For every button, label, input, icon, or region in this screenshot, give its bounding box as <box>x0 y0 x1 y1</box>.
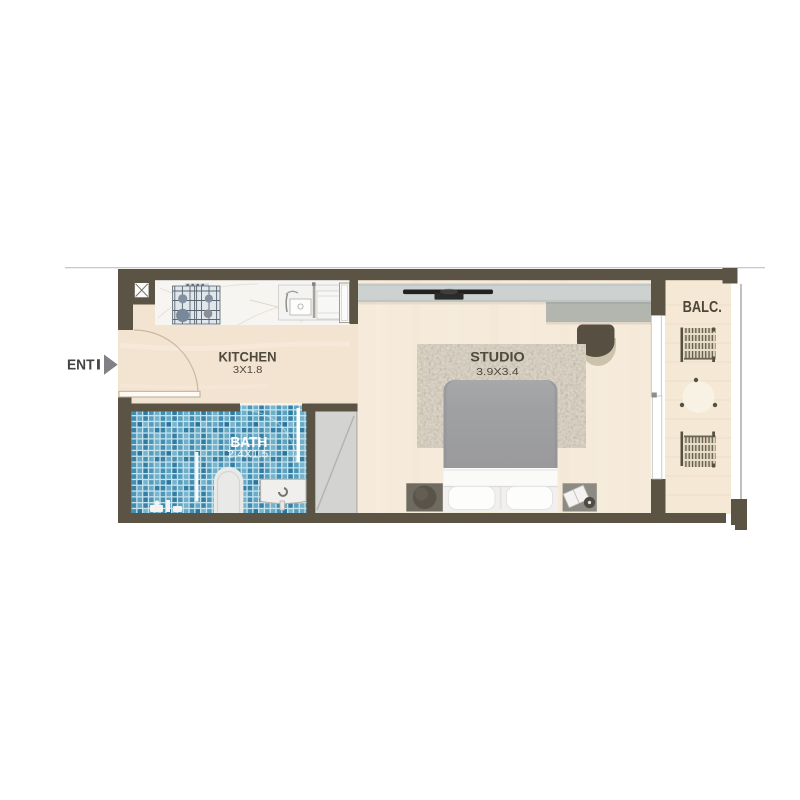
svg-text:KITCHEN: KITCHEN <box>219 349 277 365</box>
svg-text:BALC.: BALC. <box>683 299 722 316</box>
svg-text:3.9X3.4: 3.9X3.4 <box>476 367 519 378</box>
svg-text:ENT: ENT <box>67 358 95 374</box>
svg-text:2.4X1.5: 2.4X1.5 <box>227 449 268 461</box>
svg-text:3X1.8: 3X1.8 <box>233 365 263 376</box>
svg-text:STUDIO: STUDIO <box>470 350 525 365</box>
